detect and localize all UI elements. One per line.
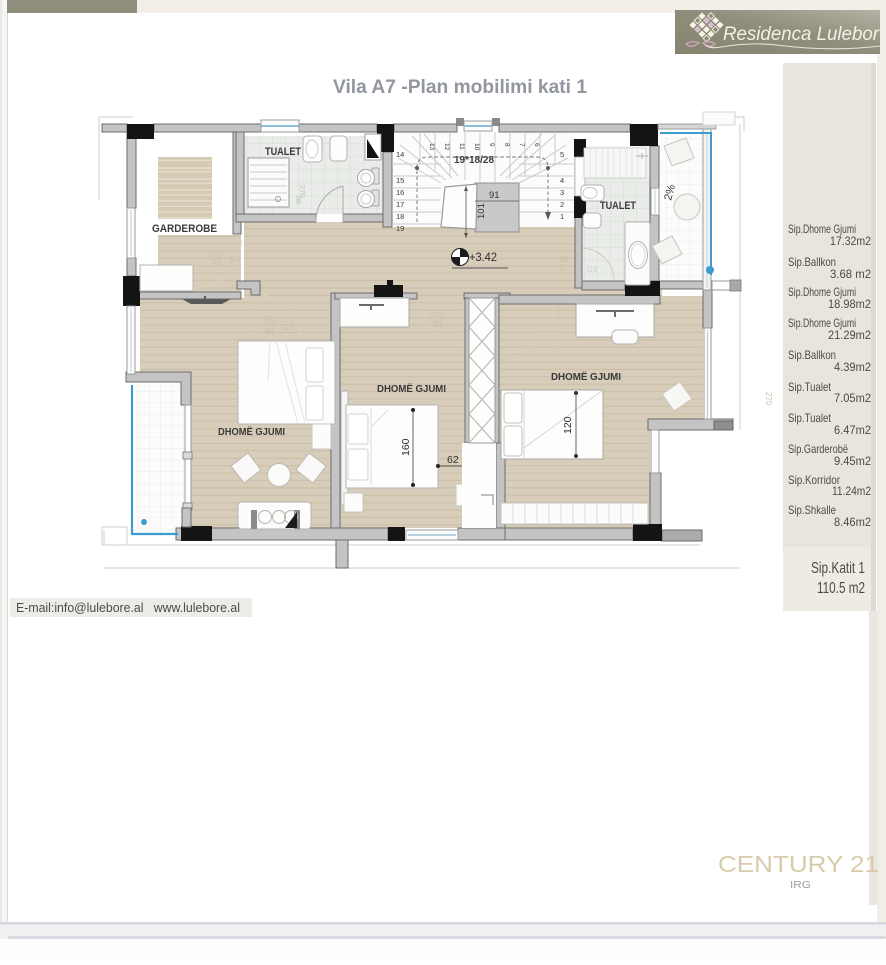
svg-text:3.68 m2: 3.68 m2	[830, 267, 871, 281]
svg-text:9.45m2: 9.45m2	[834, 454, 871, 468]
svg-text:11.24m2: 11.24m2	[832, 484, 871, 498]
svg-text:Sip.Ballkon: Sip.Ballkon	[788, 255, 836, 269]
svg-text:Sip.Tualet: Sip.Tualet	[788, 411, 832, 425]
svg-text:D3: D3	[230, 255, 241, 264]
svg-text:2: 2	[560, 200, 564, 209]
svg-text:19*18/28: 19*18/28	[454, 154, 494, 166]
svg-text:270: 270	[764, 392, 773, 406]
svg-text:91: 91	[489, 190, 500, 201]
svg-text:TUALET: TUALET	[600, 200, 636, 212]
svg-text:+3.42: +3.42	[469, 250, 497, 264]
svg-text:110.5 m2: 110.5 m2	[817, 580, 865, 597]
svg-text:19: 19	[396, 224, 404, 233]
svg-text:160: 160	[400, 438, 412, 456]
svg-text:8.46m2: 8.46m2	[834, 515, 871, 529]
svg-text:D3: D3	[283, 323, 294, 332]
svg-text:Sip.Tualet: Sip.Tualet	[788, 380, 832, 394]
svg-text:270: 270	[262, 318, 276, 327]
svg-text:DHOMË GJUMI: DHOMË GJUMI	[551, 370, 621, 383]
svg-text:120: 120	[562, 416, 574, 434]
svg-text:6: 6	[533, 143, 540, 147]
svg-text:7: 7	[518, 143, 525, 147]
svg-text:13: 13	[428, 143, 435, 151]
svg-text:18: 18	[396, 212, 404, 221]
svg-text:E-mail:info@lulebore.al www.: E-mail:info@lulebore.al www.lulebore.al	[16, 601, 240, 615]
svg-text:270: 270	[430, 311, 444, 320]
svg-text:17.32m2: 17.32m2	[830, 234, 871, 248]
svg-text:Residenca Lulebor: Residenca Lulebor	[723, 24, 880, 45]
svg-text:90: 90	[212, 259, 221, 268]
svg-text:270: 270	[208, 250, 222, 259]
svg-text:80: 80	[294, 196, 303, 204]
svg-text:90: 90	[265, 327, 274, 336]
svg-text:16: 16	[396, 188, 404, 197]
svg-text:17: 17	[396, 200, 404, 209]
svg-text:GARDEROBE: GARDEROBE	[152, 223, 217, 235]
svg-text:9: 9	[488, 143, 495, 147]
svg-text:70: 70	[558, 255, 567, 264]
svg-text:CENTURY 21: CENTURY 21	[718, 851, 879, 877]
svg-text:DHOMË GJUMI: DHOMË GJUMI	[218, 425, 285, 438]
svg-text:1: 1	[560, 212, 564, 221]
svg-text:14: 14	[396, 150, 404, 159]
svg-text:IRG: IRG	[790, 880, 811, 891]
svg-text:8: 8	[503, 143, 510, 147]
svg-text:101: 101	[476, 203, 487, 219]
svg-text:Sip.Shkalle: Sip.Shkalle	[788, 503, 836, 517]
svg-text:90: 90	[433, 320, 442, 329]
svg-text:4.39m2: 4.39m2	[834, 360, 871, 374]
svg-text:Sip.Ballkon: Sip.Ballkon	[788, 348, 836, 362]
svg-text:10: 10	[473, 143, 480, 151]
svg-text:7.05m2: 7.05m2	[834, 391, 871, 405]
svg-text:18.98m2: 18.98m2	[828, 297, 871, 311]
svg-text:4: 4	[560, 176, 564, 185]
svg-text:D3: D3	[587, 265, 598, 274]
svg-text:5: 5	[560, 150, 564, 159]
svg-text:Vila A7 -Plan mobilimi kati 1: Vila A7 -Plan mobilimi kati 1	[333, 76, 587, 98]
svg-text:11: 11	[458, 143, 465, 150]
svg-text:0: 0	[560, 264, 565, 273]
svg-text:6.47m2: 6.47m2	[834, 423, 871, 437]
svg-text:15: 15	[396, 176, 404, 185]
svg-text:3: 3	[560, 188, 564, 197]
svg-text:TUALET: TUALET	[265, 146, 301, 158]
svg-text:DHOMË GJUMI: DHOMË GJUMI	[377, 382, 446, 395]
svg-text:12: 12	[443, 143, 450, 151]
svg-text:Sip.Katit 1: Sip.Katit 1	[811, 560, 865, 577]
svg-text:62: 62	[447, 454, 459, 466]
svg-text:21.29m2: 21.29m2	[828, 328, 871, 342]
